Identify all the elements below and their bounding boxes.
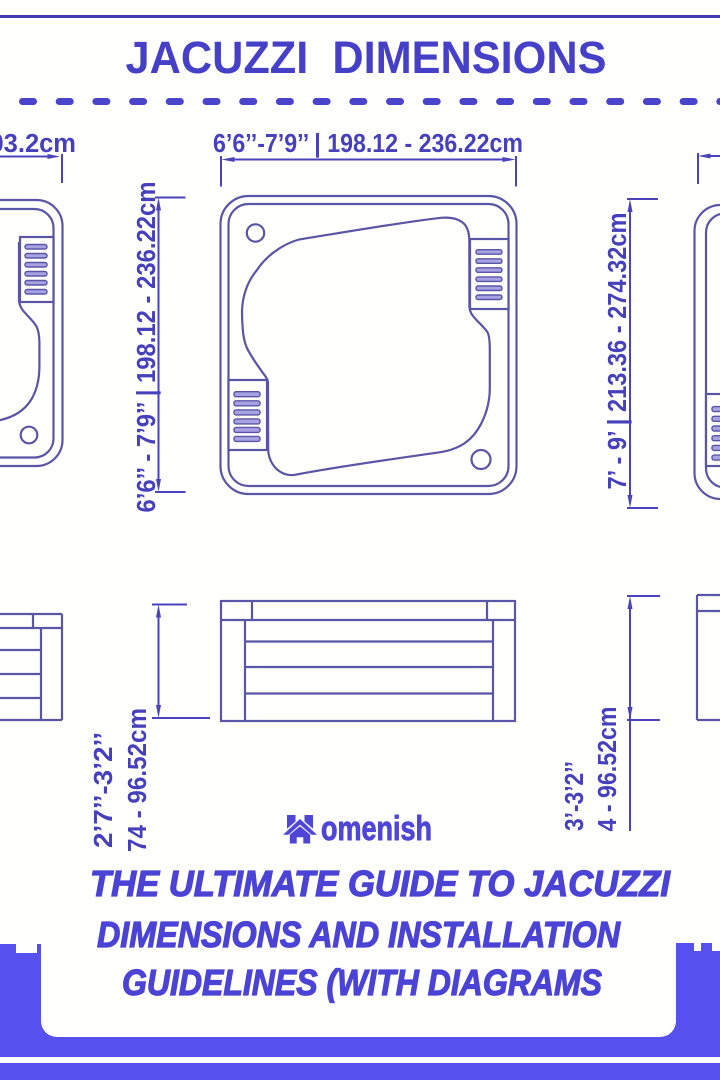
svg-text:6’6’’-7’9’’ | 198.12 - 236.22c: 6’6’’-7’9’’ | 198.12 - 236.22cm <box>213 130 523 158</box>
svg-text:omenish: omenish <box>321 810 432 848</box>
svg-text:3’-3’2’’: 3’-3’2’’ <box>561 761 589 831</box>
svg-text:JACUZZI DIMENSIONS: JACUZZI DIMENSIONS <box>126 32 607 83</box>
svg-text:DIMENSIONS AND INSTALLATION: DIMENSIONS AND INSTALLATION <box>97 914 621 955</box>
svg-text:THE ULTIMATE GUIDE TO JACUZZI: THE ULTIMATE GUIDE TO JACUZZI <box>90 863 671 904</box>
svg-text:74 - 96.52cm: 74 - 96.52cm <box>124 708 152 852</box>
svg-text:2’7’’-3’2’’: 2’7’’-3’2’’ <box>90 732 118 848</box>
svg-text:4 - 96.52cm: 4 - 96.52cm <box>594 707 622 832</box>
svg-text:7’ - 9’ | 213.36 - 274.32cm: 7’ - 9’ | 213.36 - 274.32cm <box>604 213 632 490</box>
svg-text:GUIDELINES (WITH DIAGRAMS: GUIDELINES (WITH DIAGRAMS <box>122 962 602 1003</box>
svg-text:03.2cm: 03.2cm <box>0 130 76 158</box>
svg-text:6’6’’ - 7’9’’ | 198.12 - 236.2: 6’6’’ - 7’9’’ | 198.12 - 236.22cm <box>133 182 161 513</box>
